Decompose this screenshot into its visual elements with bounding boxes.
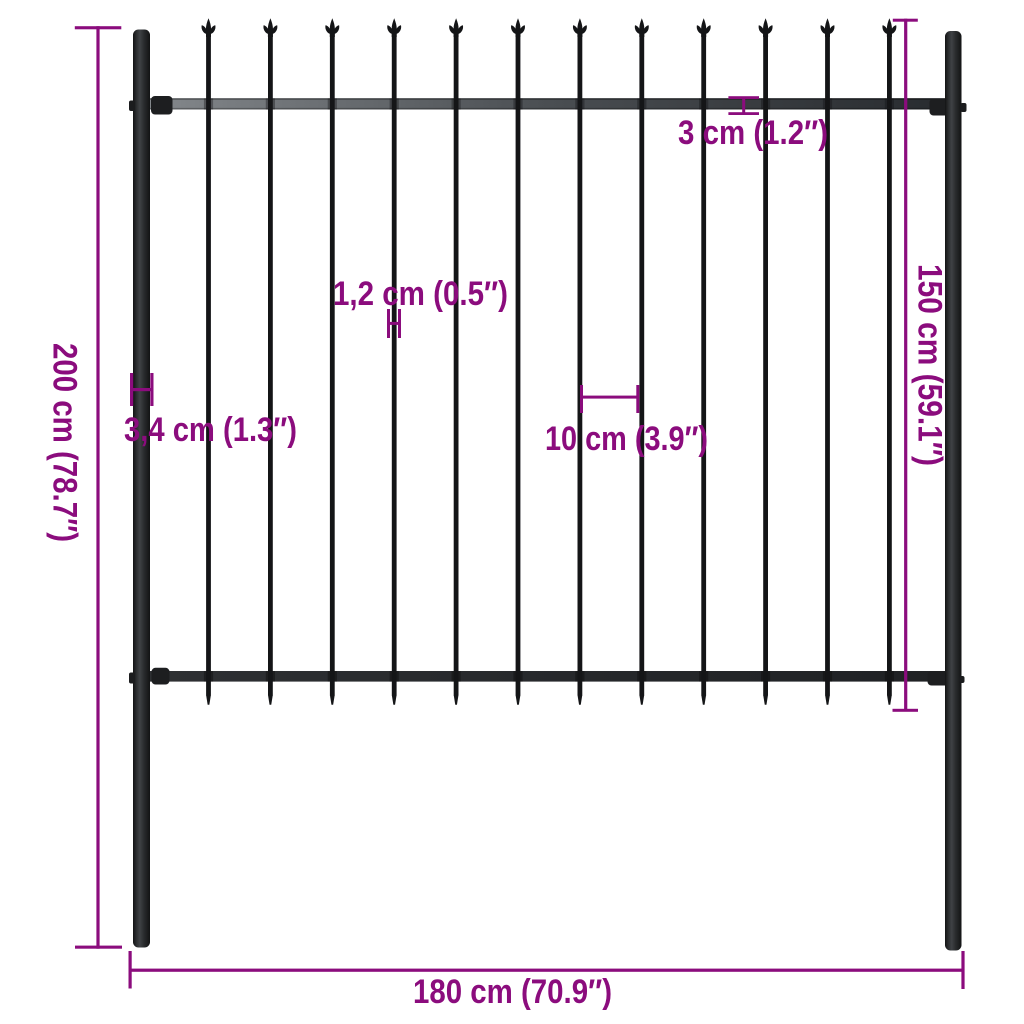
svg-text:180 cm (70.9″): 180 cm (70.9″) bbox=[413, 973, 612, 1011]
svg-text:3 cm (1.2″): 3 cm (1.2″) bbox=[678, 114, 828, 152]
svg-text:150 cm (59.1″): 150 cm (59.1″) bbox=[911, 264, 949, 466]
svg-text:200 cm (78.7″): 200 cm (78.7″) bbox=[46, 343, 84, 542]
svg-text:10 cm (3.9″): 10 cm (3.9″) bbox=[545, 420, 708, 458]
svg-text:3,4 cm (1.3″): 3,4 cm (1.3″) bbox=[124, 411, 297, 449]
svg-text:1,2 cm (0.5″): 1,2 cm (0.5″) bbox=[333, 275, 508, 313]
